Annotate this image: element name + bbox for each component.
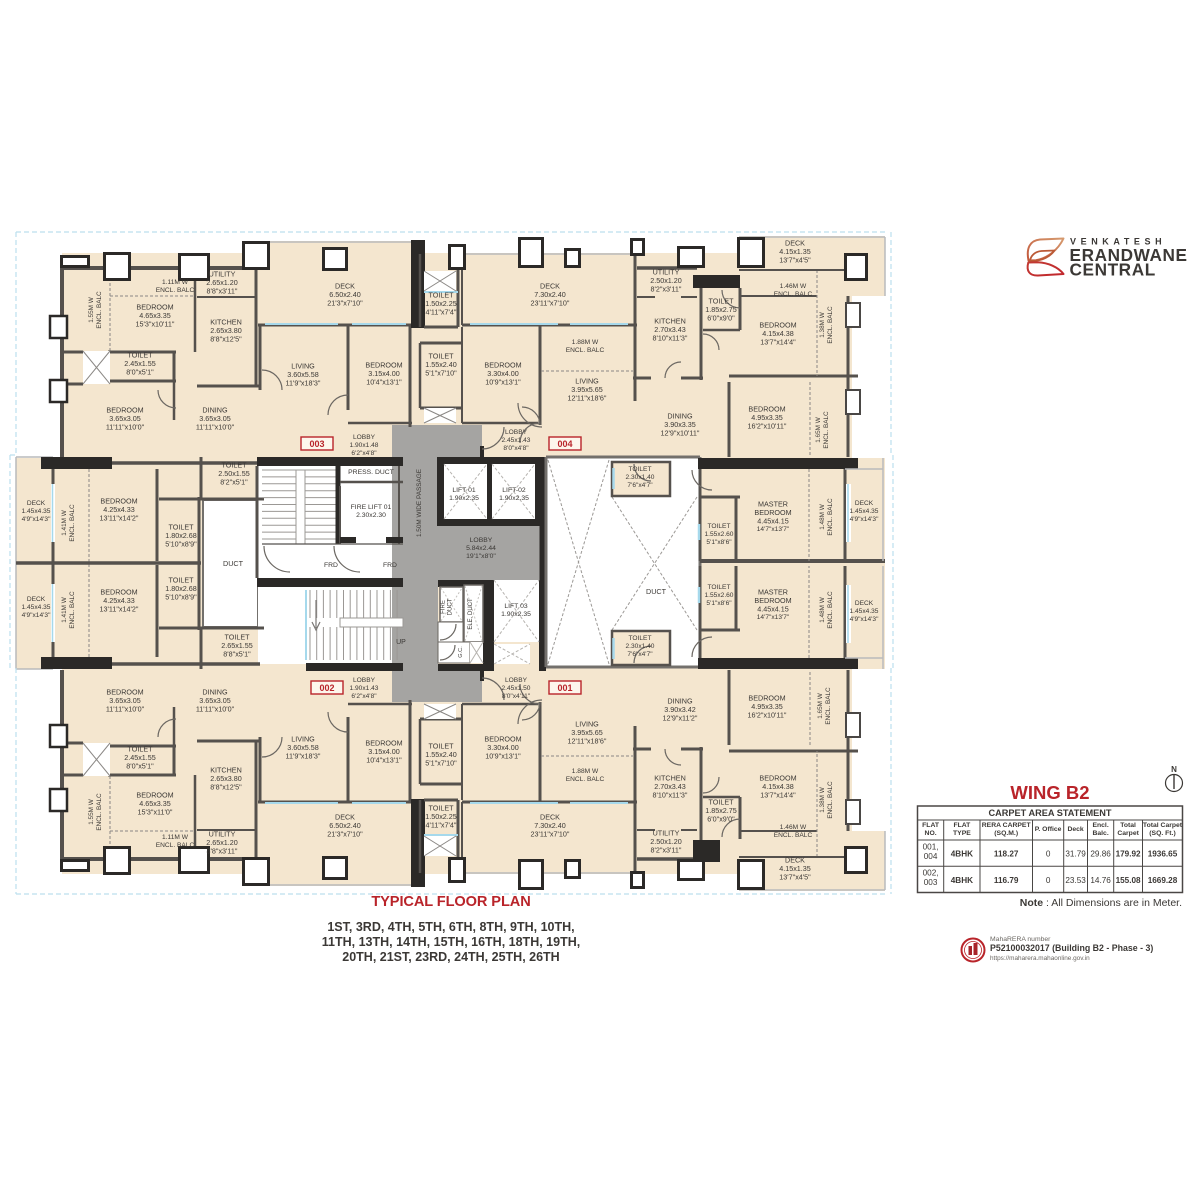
svg-text:TOILET2.30x1.407'6"x4'7": TOILET2.30x1.407'6"x4'7" [626, 635, 655, 658]
svg-text:CARPET AREA STATEMENT: CARPET AREA STATEMENT [988, 808, 1111, 818]
svg-text:BEDROOM4.25x4.3313'11"x14'2": BEDROOM4.25x4.3313'11"x14'2" [100, 497, 139, 523]
svg-text:TOILET2.65x1.558'8"x5'1": TOILET2.65x1.558'8"x5'1" [221, 633, 253, 659]
svg-text:BEDROOM4.95x3.3516'2"x10'11": BEDROOM4.95x3.3516'2"x10'11" [748, 405, 787, 431]
svg-text:LOBBY2.45x1.438'0"x4'8": LOBBY2.45x1.438'0"x4'8" [502, 429, 531, 452]
svg-text:UP: UP [396, 639, 406, 646]
svg-text:FRD: FRD [324, 562, 338, 569]
svg-text:4BHK: 4BHK [951, 850, 973, 859]
svg-text:BEDROOM3.15x4.0010'4"x13'1": BEDROOM3.15x4.0010'4"x13'1" [365, 739, 402, 765]
svg-text:FIREDUCT: FIREDUCT [440, 598, 453, 615]
svg-text:UTILITY2.50x1.208'2"x3'11": UTILITY2.50x1.208'2"x3'11" [650, 829, 682, 855]
svg-text:118.27: 118.27 [994, 850, 1019, 859]
svg-text:FRD: FRD [383, 562, 397, 569]
svg-text:Encl.Balc.: Encl.Balc. [1092, 822, 1108, 837]
svg-text:CENTRAL: CENTRAL [1070, 260, 1156, 280]
svg-text:LOBBY1.90x1.486'2"x4'8": LOBBY1.90x1.486'2"x4'8" [350, 434, 379, 457]
svg-text:155.08: 155.08 [1116, 876, 1141, 885]
svg-text:KITCHEN2.70x3.438'10"x11'3": KITCHEN2.70x3.438'10"x11'3" [653, 774, 688, 800]
svg-text:002,003: 002,003 [923, 869, 939, 888]
svg-text:002: 002 [319, 683, 334, 693]
svg-text:BEDROOM4.65x3.3515'3"x11'0": BEDROOM4.65x3.3515'3"x11'0" [136, 791, 173, 817]
svg-text:FLATTYPE: FLATTYPE [953, 822, 971, 837]
svg-text:TOILET1.85x2.756'0"x9'0": TOILET1.85x2.756'0"x9'0" [705, 297, 737, 323]
svg-text:BEDROOM4.25x4.3313'11"x14'2": BEDROOM4.25x4.3313'11"x14'2" [100, 588, 139, 614]
svg-text:BEDROOM3.65x3.0511'11"x10'0": BEDROOM3.65x3.0511'11"x10'0" [106, 688, 145, 714]
svg-text:003: 003 [309, 439, 324, 449]
svg-text:KITCHEN2.65x3.808'8"x12'5": KITCHEN2.65x3.808'8"x12'5" [210, 766, 242, 792]
svg-text:14'7"x13'7": 14'7"x13'7" [757, 614, 790, 621]
svg-text:TOILET1.50x2.254'11"x7'4": TOILET1.50x2.254'11"x7'4" [425, 291, 457, 317]
svg-text:TOILET2.45x1.558'0"x5'1": TOILET2.45x1.558'0"x5'1" [124, 745, 156, 771]
svg-text:MahaRERA number: MahaRERA number [990, 936, 1051, 943]
svg-text:1669.28: 1669.28 [1148, 876, 1178, 885]
svg-text:23.53: 23.53 [1065, 876, 1086, 885]
svg-text:TOILET1.55x2.605'1"x8'6": TOILET1.55x2.605'1"x8'6" [705, 523, 734, 546]
svg-text:31.79: 31.79 [1065, 850, 1086, 859]
svg-text:UTILITY2.65x1.208'8"x3'11": UTILITY2.65x1.208'8"x3'11" [206, 270, 238, 296]
svg-text:BEDROOM4.15x4.3813'7"x14'4": BEDROOM4.15x4.3813'7"x14'4" [759, 321, 796, 347]
svg-text:TOILET2.50x1.558'2"x5'1": TOILET2.50x1.558'2"x5'1" [218, 461, 250, 487]
svg-text:29.86: 29.86 [1090, 850, 1111, 859]
svg-text:14'7"x13'7": 14'7"x13'7" [757, 526, 790, 533]
svg-text:WING B2: WING B2 [1010, 782, 1089, 803]
svg-text:DUCT: DUCT [223, 559, 244, 568]
svg-text:TOILET1.80x2.685'10"x8'9": TOILET1.80x2.685'10"x8'9" [165, 523, 197, 549]
svg-text:Deck: Deck [1067, 826, 1083, 833]
svg-text:TOILET1.50x2.254'11"x7'4": TOILET1.50x2.254'11"x7'4" [425, 804, 457, 830]
svg-text:BEDROOM3.30x4.0010'9"x13'1": BEDROOM3.30x4.0010'9"x13'1" [484, 735, 521, 761]
svg-text:ELE. DUCT: ELE. DUCT [468, 598, 474, 630]
svg-text:1ST, 3RD, 4TH, 5TH, 6TH, 8TH,: 1ST, 3RD, 4TH, 5TH, 6TH, 8TH, 9TH, 10TH, [327, 920, 574, 934]
svg-text:TYPICAL FLOOR PLAN: TYPICAL FLOOR PLAN [371, 894, 530, 910]
svg-text:Note : All Dimensions are in M: Note : All Dimensions are in Meter. [1020, 897, 1182, 909]
svg-text:LOBBY1.90x1.436'2"x4'8": LOBBY1.90x1.436'2"x4'8" [350, 677, 379, 700]
svg-text:BEDROOM4.95x3.3516'2"x10'11": BEDROOM4.95x3.3516'2"x10'11" [748, 694, 787, 720]
svg-text:BEDROOM4.15x4.3813'7"x14'4": BEDROOM4.15x4.3813'7"x14'4" [759, 774, 796, 800]
svg-text:G.C.: G.C. [458, 646, 464, 658]
svg-text:UTILITY2.50x1.208'2"x3'11": UTILITY2.50x1.208'2"x3'11" [650, 268, 682, 294]
svg-text:TOILET1.55x2.405'1"x7'10": TOILET1.55x2.405'1"x7'10" [425, 352, 457, 378]
svg-text:0: 0 [1046, 850, 1051, 859]
svg-text:4BHK: 4BHK [951, 876, 973, 885]
svg-text:UTILITY2.65x1.208'8"x3'11": UTILITY2.65x1.208'8"x3'11" [206, 830, 238, 856]
svg-text:KITCHEN2.70x3.438'10"x11'3": KITCHEN2.70x3.438'10"x11'3" [653, 317, 688, 343]
svg-text:179.92: 179.92 [1116, 850, 1141, 859]
svg-text:0: 0 [1046, 876, 1051, 885]
svg-text:TOILET2.45x1.558'0"x5'1": TOILET2.45x1.558'0"x5'1" [124, 351, 156, 377]
svg-text:FIRE LIFT 012.30x2.30: FIRE LIFT 012.30x2.30 [351, 504, 392, 519]
svg-text:BEDROOM4.65x3.3515'3"x10'11": BEDROOM4.65x3.3515'3"x10'11" [136, 303, 175, 329]
svg-text:BEDROOM3.65x3.0511'11"x10'0": BEDROOM3.65x3.0511'11"x10'0" [106, 406, 145, 432]
svg-text:MASTERBEDROOM4.45x4.15: MASTERBEDROOM4.45x4.15 [754, 500, 791, 526]
svg-text:N: N [1171, 765, 1177, 774]
svg-text:001,004: 001,004 [923, 842, 939, 861]
svg-text:14.76: 14.76 [1090, 876, 1111, 885]
svg-text:TOILET1.55x2.605'1"x8'6": TOILET1.55x2.605'1"x8'6" [705, 584, 734, 607]
svg-text:20TH, 21ST, 23RD, 24TH, 25TH,: 20TH, 21ST, 23RD, 24TH, 25TH, 26TH [342, 950, 559, 964]
svg-text:TOILET1.80x2.685'10"x8'9": TOILET1.80x2.685'10"x8'9" [165, 576, 197, 602]
svg-text:PRESS. DUCT: PRESS. DUCT [348, 469, 394, 476]
svg-text:116.79: 116.79 [994, 876, 1019, 885]
svg-text:P. Office: P. Office [1035, 826, 1062, 833]
svg-text:P52100032017 (Building B2 - Ph: P52100032017 (Building B2 - Phase - 3) [990, 943, 1153, 953]
svg-text:BEDROOM3.15x4.0010'4"x13'1": BEDROOM3.15x4.0010'4"x13'1" [365, 361, 402, 387]
svg-text:TOILET1.55x2.405'1"x7'10": TOILET1.55x2.405'1"x7'10" [425, 742, 457, 768]
svg-text:BEDROOM3.30x4.0010'9"x13'1": BEDROOM3.30x4.0010'9"x13'1" [484, 361, 521, 387]
svg-text:LIFT-021.90x2.35: LIFT-021.90x2.35 [499, 487, 529, 502]
svg-text:TOILET2.30x1.407'6"x4'7": TOILET2.30x1.407'6"x4'7" [626, 466, 655, 489]
svg-text:004: 004 [557, 439, 572, 449]
svg-text:LOBBY2.45x1.508'0"x4'11": LOBBY2.45x1.508'0"x4'11" [502, 677, 531, 700]
svg-text:LIFT 031.90x2.35: LIFT 031.90x2.35 [501, 603, 531, 618]
svg-text:KITCHEN2.65x3.808'8"x12'5": KITCHEN2.65x3.808'8"x12'5" [210, 318, 242, 344]
svg-text:11TH, 13TH, 14TH, 15TH, 16TH,: 11TH, 13TH, 14TH, 15TH, 16TH, 18TH, 19TH… [322, 935, 580, 949]
svg-text:001: 001 [557, 683, 572, 693]
svg-text:1936.65: 1936.65 [1148, 850, 1178, 859]
svg-text:TOILET1.85x2.756'0"x9'0": TOILET1.85x2.756'0"x9'0" [705, 798, 737, 824]
svg-text:MASTERBEDROOM4.45x4.15: MASTERBEDROOM4.45x4.15 [754, 588, 791, 614]
svg-text:LOBBY5.84x2.4419'1"x8'0": LOBBY5.84x2.4419'1"x8'0" [466, 537, 496, 560]
svg-text:https://maharera.mahaonline.go: https://maharera.mahaonline.gov.in [990, 955, 1090, 962]
svg-text:DUCT: DUCT [646, 587, 667, 596]
svg-text:1.50M WIDE PASSAGE: 1.50M WIDE PASSAGE [416, 469, 423, 537]
svg-text:LIFT 011.90x2.35: LIFT 011.90x2.35 [449, 487, 479, 502]
